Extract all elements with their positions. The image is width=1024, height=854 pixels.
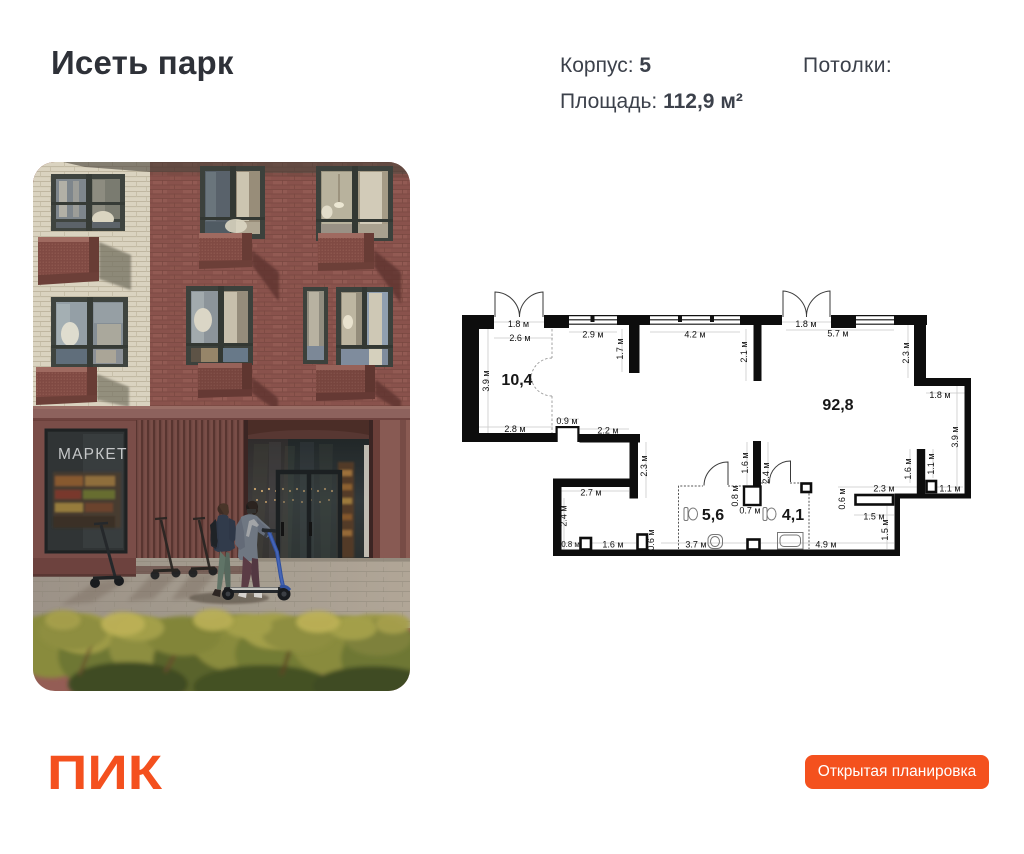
svg-text:2.4 м: 2.4 м [761,462,771,483]
svg-text:1.1 м: 1.1 м [926,453,936,474]
svg-text:4.9 м: 4.9 м [815,540,836,550]
svg-text:0.7 м: 0.7 м [739,506,760,516]
svg-text:0.6 м: 0.6 м [646,529,656,550]
svg-text:1.7 м: 1.7 м [615,338,625,359]
svg-text:2.2 м: 2.2 м [597,426,618,436]
svg-text:0.6 м: 0.6 м [837,488,847,509]
svg-text:1.6 м: 1.6 м [602,540,623,550]
svg-text:1.6 м: 1.6 м [740,452,750,473]
svg-text:1.8 м: 1.8 м [508,319,529,329]
svg-text:2.3 м: 2.3 м [873,484,894,494]
svg-text:5.7 м: 5.7 м [827,329,848,339]
svg-text:МАРКЕТ: МАРКЕТ [58,446,128,463]
svg-text:0.8 м: 0.8 м [730,485,740,506]
svg-text:2.8 м: 2.8 м [504,424,525,434]
svg-text:1.6 м: 1.6 м [903,458,913,479]
svg-text:2.1 м: 2.1 м [739,341,749,362]
svg-text:3.9 м: 3.9 м [481,370,491,391]
svg-text:1.5 м: 1.5 м [880,519,890,540]
svg-text:0.9 м: 0.9 м [556,416,577,426]
svg-text:1.1 м: 1.1 м [939,484,960,494]
svg-text:2.3 м: 2.3 м [901,342,911,363]
svg-text:2.7 м: 2.7 м [580,488,601,498]
svg-text:2.9 м: 2.9 м [582,330,603,340]
svg-text:4,1: 4,1 [782,507,804,524]
svg-text:1.8 м: 1.8 м [795,319,816,329]
svg-text:3.7 м: 3.7 м [685,540,706,550]
svg-text:5,6: 5,6 [702,507,724,524]
svg-text:2.4 м: 2.4 м [559,505,569,526]
svg-text:4.2 м: 4.2 м [684,330,705,340]
svg-text:3.9 м: 3.9 м [950,426,960,447]
svg-text:1.8 м: 1.8 м [929,390,950,400]
svg-text:2.3 м: 2.3 м [639,455,649,476]
svg-text:2.6 м: 2.6 м [509,333,530,343]
svg-text:0.8 м: 0.8 м [561,540,579,549]
svg-text:92,8: 92,8 [822,397,853,414]
svg-text:10,4: 10,4 [501,372,532,389]
